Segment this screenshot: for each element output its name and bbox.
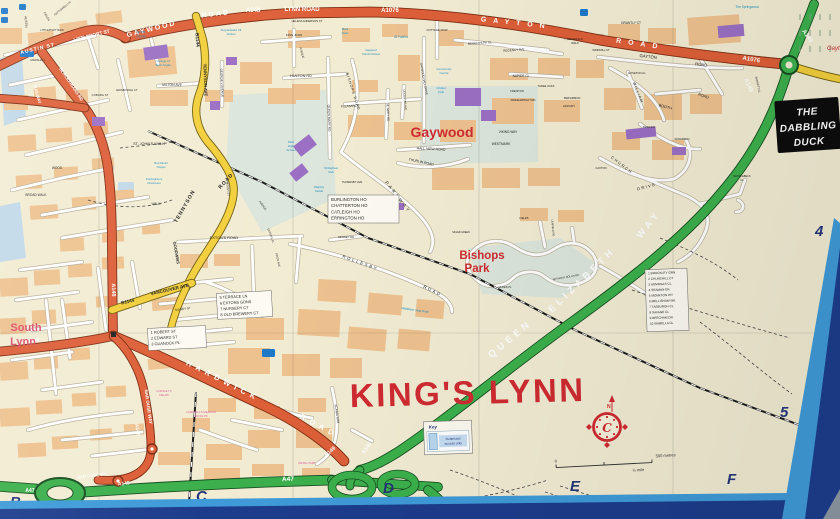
svg-text:C: C <box>602 421 612 435</box>
street-index-guanock: 1 ROBERT ST2 EDWARD ST3 GUANOCK PL <box>147 325 206 350</box>
map-label: Gaywood <box>410 124 473 140</box>
map-label: WESTMARK <box>492 142 511 146</box>
map-label: MARSHALL <box>30 58 46 62</box>
svg-text:500 metres: 500 metres <box>656 452 676 458</box>
street-map: GAYWOODROADA148LYNN ROADA1076GAYTONROADA… <box>0 0 840 519</box>
svg-text:¼ mile: ¼ mile <box>632 467 645 473</box>
list-item: ERRINGTON HO <box>331 216 365 221</box>
map-label: WINDMILL CT <box>592 48 610 52</box>
map-label: A47 <box>25 488 34 494</box>
map-key: KeyRestrictedaccess only <box>423 420 472 455</box>
map-label: KESWICK <box>643 125 656 129</box>
map-label: The Springwood <box>735 5 758 9</box>
sign-line: THE <box>796 106 818 118</box>
map-label: A47 <box>282 476 295 483</box>
map-label: LITTLEPORT TERR <box>40 28 63 32</box>
map-label: Almshouses <box>147 182 161 185</box>
map-label: Lynn <box>10 336 36 348</box>
map-label: WALK <box>571 41 579 45</box>
map-label: A148 <box>110 283 116 296</box>
map-label: GRANTLY CT <box>621 21 641 25</box>
map-label: West Anglia <box>155 63 171 67</box>
map-label: HULTON RD <box>290 74 312 78</box>
street-index-terrace: 5 TERRACE LN6 EXTONS GDNS7 NURSERY CT8 O… <box>216 291 272 320</box>
map-label: THORESBY AVE <box>342 180 363 184</box>
map-label: Tower <box>341 31 348 35</box>
list-item: 10 ISABELLA CL <box>650 321 674 326</box>
grid-letter: E <box>570 478 581 495</box>
map-label: KING'S LYNN <box>349 371 586 414</box>
map-label: B1144 <box>194 33 201 48</box>
list-item: BURLINGTON HO <box>331 197 367 202</box>
list-item: 4 SEAMAN DR <box>649 287 671 292</box>
map-label: Park <box>465 263 491 275</box>
list-item: 9 BEECHAM DR <box>650 315 674 320</box>
map-label: South <box>10 322 41 334</box>
list-item: 5 MONKTON WY <box>649 293 673 298</box>
key-title: Key <box>429 424 438 429</box>
map-label: CAMPBELL'S MEADOW <box>186 410 216 414</box>
map-label: WOOD <box>52 166 63 170</box>
map-label: BROAD WALK <box>25 193 47 197</box>
list-item: CHATTERTON HO <box>331 203 368 208</box>
map-label: CAXTON <box>595 166 606 170</box>
map-label: Club <box>438 90 445 94</box>
map-label: Sports <box>136 30 146 34</box>
map-label: A148 <box>246 8 261 14</box>
map-label: FIELDS <box>159 393 169 397</box>
sign-line: DUCK <box>793 136 825 149</box>
map-label: A1076 <box>381 8 399 14</box>
map-label: CL <box>740 178 744 182</box>
map-label: MILTON AVE <box>162 83 183 87</box>
map-label: LYNN ROAD <box>284 7 320 13</box>
map-label: A148 <box>118 480 131 487</box>
map-label: MAPPLEBECK <box>733 174 751 178</box>
map-label: COBURG ST <box>92 93 109 97</box>
map-label: KING JOHN <box>286 33 302 37</box>
map-label: HORSLEY'S <box>156 389 171 393</box>
map-label: Centre <box>136 35 146 39</box>
map-label: Fields <box>315 189 324 193</box>
map-label: THREE OAKS <box>538 84 555 88</box>
map-sign-photo: GAYWOODROADA148LYNN ROADA1076GAYTONROADA… <box>0 0 840 519</box>
map-label: WALK <box>152 202 162 206</box>
map-label: FIELDS <box>519 216 528 220</box>
list-item: 7 TASBURGH CL <box>649 304 674 309</box>
map-label: Gaywood <box>365 48 377 52</box>
grid-letter: D <box>383 480 394 497</box>
grid-letter: F <box>727 471 737 488</box>
map-label: FREISTON <box>510 89 524 93</box>
map-label: Chapel <box>157 165 166 169</box>
map-label: HICKORY <box>563 104 575 108</box>
dabbling-duck-sign: THEDABBLINGDUCK <box>774 97 840 153</box>
map-label: ST. JOHN'S WALK <box>133 142 165 146</box>
map-label: COTTAGE ROW <box>427 28 448 32</box>
list-item: 3 ADMIRALS CL <box>648 282 671 287</box>
map-label: Church Rooms <box>362 52 381 56</box>
map-label: Framlingham's <box>146 178 163 181</box>
map-label: Club <box>328 170 334 174</box>
map-label: RETAIL PK <box>194 414 208 418</box>
map-label: School <box>227 32 236 36</box>
svg-text:N: N <box>607 404 611 410</box>
map-label: RETAIL PARK <box>299 461 316 465</box>
grid-number: 5 <box>780 404 789 421</box>
map-label: Centre <box>439 71 448 75</box>
map-label: VIKING WAY <box>499 130 518 134</box>
list-item: 8 SAVAGE CL <box>649 310 669 315</box>
map-label: DE GREY RD <box>386 103 391 123</box>
grid-number: 4 <box>814 223 824 240</box>
map-label: PERSIMMON <box>564 96 581 100</box>
street-index-bishops: 1 BROCKLEY GRN2 CHURCHILL CT3 ADMIRALS C… <box>645 268 689 331</box>
house-index-gaywood: BURLINGTON HOCHATTERTON HOCATLEIGH HOERR… <box>328 195 399 223</box>
map-label: Gayt <box>827 46 840 52</box>
map-label: Black <box>342 27 349 31</box>
map-label: DENNEY RD <box>338 235 354 239</box>
map-label: EXTON'S ROAD <box>210 236 239 240</box>
map-label: Bishops <box>459 250 504 262</box>
map-label: SILVER GREEN <box>452 231 470 234</box>
map-label: HOVETON CL <box>628 71 646 75</box>
map-label: WHEELWRIGHT RD <box>511 98 536 102</box>
map-label: St Faith's <box>394 35 408 39</box>
map-label: HELENA ANDERSON CT <box>292 19 323 23</box>
map-label: DUKES PL <box>499 285 512 289</box>
list-item: CATLEIGH HO <box>331 209 360 214</box>
key-line: access only <box>445 441 463 446</box>
map-label: EDINBURGH CT <box>116 88 138 92</box>
map-label: NAPIER CL <box>513 74 530 78</box>
map-label: School <box>286 148 296 152</box>
map-label: WINGFIELD <box>675 137 690 141</box>
